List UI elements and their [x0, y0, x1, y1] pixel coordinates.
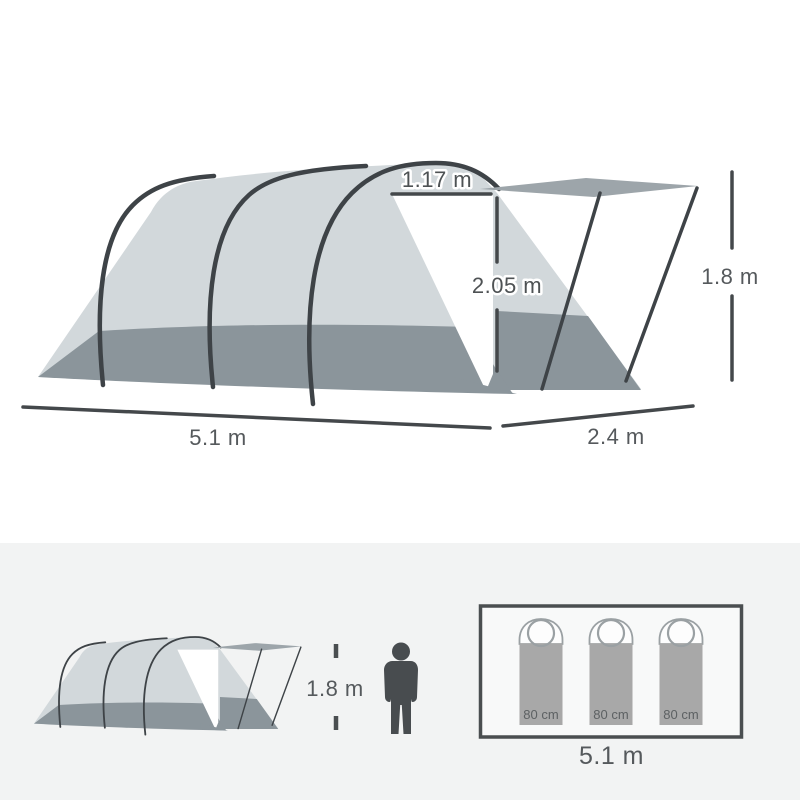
sleeping-bag-width-label: 80 cm	[663, 707, 698, 722]
sleeping-bag-icon-1: 80 cm	[520, 619, 563, 725]
dimension-label-door-height: 2.05 m	[472, 273, 542, 298]
sleeping-bag-width-label: 80 cm	[593, 707, 628, 722]
sleeping-bag-icon-3: 80 cm	[660, 619, 703, 725]
floor-plan-length-label: 5.1 m	[579, 742, 644, 770]
dimension-label-awning-height: 1.8 m	[701, 264, 759, 289]
sleeping-bag-icon-2: 80 cm	[590, 619, 633, 725]
tent-dimension-diagram: 1.17 m 2.05 m 1.8 m 5.1 m 2.4 m 1.8 m 80…	[0, 0, 800, 800]
person-height-label: 1.8 m	[306, 676, 364, 701]
dimension-label-awning-depth: 2.4 m	[587, 424, 645, 449]
dimension-label-tent-length: 5.1 m	[189, 425, 247, 450]
sleeping-bag-width-label: 80 cm	[523, 707, 558, 722]
dimension-label-door-width: 1.17 m	[402, 167, 472, 192]
product-dimension-sheet: 1.17 m 2.05 m 1.8 m 5.1 m 2.4 m 1.8 m 80…	[0, 0, 800, 800]
